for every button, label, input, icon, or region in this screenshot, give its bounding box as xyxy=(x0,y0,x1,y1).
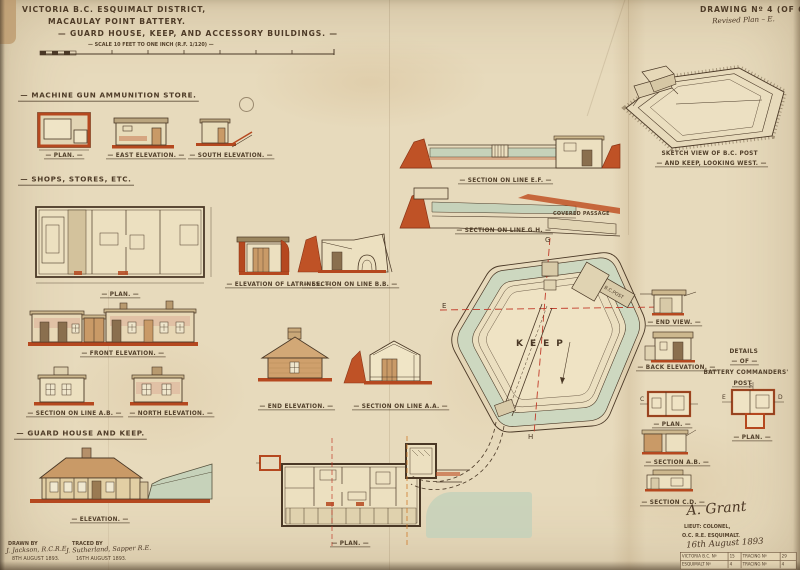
shops-section-ab-drawing xyxy=(30,362,100,410)
stamp-cell: VICTORIA B.C. Nº xyxy=(681,553,729,560)
bc-section-cd-drawing xyxy=(643,468,697,496)
registry-stamp: VICTORIA B.C. Nº 15 TRACING Nº 29 ESQUIM… xyxy=(680,552,797,569)
guard-house-elevation-label: ELEVATION. xyxy=(70,516,130,523)
latrines-section-bb-drawing xyxy=(296,226,392,280)
cottage-section-aa-drawing xyxy=(344,333,436,390)
cottage-end-elevation-drawing xyxy=(256,328,336,386)
shops-plan-drawing xyxy=(30,195,215,290)
shops-front-elevation-drawing xyxy=(28,300,200,350)
bc-plan-b-drawing: F E D xyxy=(722,382,784,430)
stamp-cell: TRACING Nº xyxy=(741,561,780,568)
approver-rank: LIEUT: COLONEL, xyxy=(684,524,730,530)
sheet-title-line3: GUARD HOUSE, KEEP, AND ACCESSORY BUILDIN… xyxy=(58,30,338,39)
stamp-cell: 4 xyxy=(780,561,792,568)
shops-front-elevation-label: FRONT ELEVATION. xyxy=(80,350,166,357)
mg-store-south-elevation-drawing xyxy=(194,114,254,150)
bc-plan-b-marker-d: D xyxy=(778,394,783,401)
drawn-by-date: 8TH AUGUST 1893. xyxy=(12,556,59,562)
bc-details-title-3: BATTERY COMMANDERS' xyxy=(702,369,790,375)
bc-end-view-label: END VIEW. xyxy=(646,319,702,326)
scan-edge xyxy=(0,0,5,570)
bc-plan-a-marker-c: C xyxy=(640,396,644,403)
mg-store-east-elevation-label: EAST ELEVATION. xyxy=(106,152,186,159)
bc-plan-b-marker-e: E xyxy=(722,394,726,401)
section-header-guard-house: GUARD HOUSE AND KEEP. xyxy=(14,430,147,440)
shops-plan-label: PLAN. xyxy=(100,291,140,298)
drawing-note: Revised Plan – E. xyxy=(712,15,775,25)
section-header-shops-stores: SHOPS, STORES, ETC. xyxy=(18,176,134,186)
cottage-end-elevation-label: END ELEVATION. xyxy=(258,403,335,410)
bc-end-view-drawing xyxy=(640,284,696,318)
latrines-section-bb-label: SECTION ON LINE B.B. xyxy=(302,281,399,288)
covered-passage-label: COVERED PASSAGE xyxy=(553,211,610,217)
traced-by-date: 16TH AUGUST 1893. xyxy=(76,556,126,562)
guard-house-elevation-drawing xyxy=(26,446,218,512)
sketch-view-caption-2: AND KEEP, LOOKING WEST. xyxy=(655,160,768,167)
bc-plan-b-label: PLAN. xyxy=(732,434,772,441)
bc-section-ab-label: SECTION A.B. xyxy=(644,459,710,466)
mg-store-plan-drawing xyxy=(33,108,97,152)
latrines-elevation-drawing xyxy=(237,230,293,280)
section-header-machine-gun-store: MACHINE GUN AMMUNITION STORE. xyxy=(18,92,199,102)
bc-details-title-2: OF xyxy=(730,358,759,365)
keep-plan-drawing: B.C.POST KEEP G E F H xyxy=(438,234,662,440)
drawing-number: DRAWING Nº 4 (OF 6). xyxy=(700,6,800,15)
stamp-cell: 15 xyxy=(728,553,741,560)
approval-date: 16th August 1893 xyxy=(686,537,764,551)
mg-store-east-elevation-drawing xyxy=(110,112,176,152)
bc-details-title-1: DETAILS xyxy=(728,348,760,354)
mg-store-south-elevation-label: SOUTH ELEVATION. xyxy=(188,152,274,159)
sheet-title-line1: VICTORIA B.C. ESQUIMALT DISTRICT, xyxy=(22,6,206,15)
stamp-cell: ESQUIMALT Nº xyxy=(681,561,729,568)
bc-plan-b-marker-f: F xyxy=(749,383,753,390)
sheet-title-line2: MACAULAY POINT BATTERY. xyxy=(48,18,186,27)
guard-house-plan-label: PLAN. xyxy=(330,540,370,547)
cottage-section-aa-label: SECTION ON LINE A.A. xyxy=(352,403,449,410)
keep-marker-g: G xyxy=(545,236,550,244)
approving-signature: A. Grant xyxy=(686,499,747,519)
keep-approach-path xyxy=(392,412,542,517)
scale-bar xyxy=(38,46,338,60)
traced-by-name: J. Sutherland, Sapper R.E. xyxy=(66,544,151,554)
shops-north-elevation-label: NORTH ELEVATION. xyxy=(128,410,214,417)
bc-plan-a-drawing: C xyxy=(640,386,698,422)
shops-north-elevation-drawing xyxy=(128,364,192,410)
drawn-by-name: J. Jackson, R.C.R.E. xyxy=(6,545,69,554)
stamp-cell: 29 xyxy=(780,553,792,560)
sketch-view-caption-1: SKETCH VIEW OF B.C. POST xyxy=(660,150,759,156)
punch-hole xyxy=(239,97,254,112)
mg-store-plan-label: PLAN. xyxy=(44,152,84,159)
tape-mark xyxy=(0,0,16,44)
keep-label: KEEP xyxy=(516,339,570,349)
drawing-sheet: VICTORIA B.C. ESQUIMALT DISTRICT, MACAUL… xyxy=(0,0,800,570)
sketch-view-drawing xyxy=(614,58,800,156)
stamp-cell: 4 xyxy=(728,561,741,568)
stamp-cell: TRACING Nº xyxy=(741,553,780,560)
bc-back-elevation-drawing xyxy=(643,328,699,366)
shops-section-ab-label: SECTION ON LINE A.B. xyxy=(26,410,123,417)
keep-section-ef-drawing xyxy=(398,130,624,182)
bc-section-ab-drawing xyxy=(638,426,696,458)
keep-marker-e: E xyxy=(442,302,446,310)
